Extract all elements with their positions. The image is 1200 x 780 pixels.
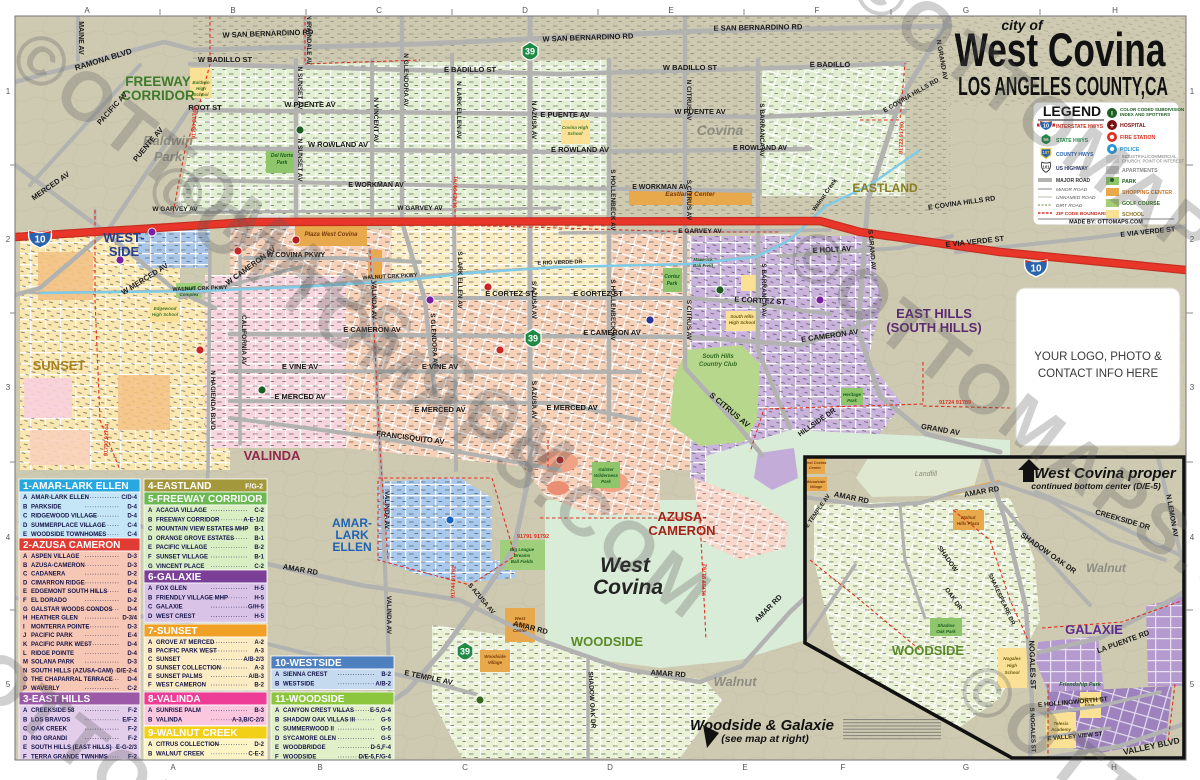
svg-text:91791 91792: 91791 91792 [517,534,549,540]
svg-text:VINCENT PLACE: VINCENT PLACE [156,564,204,570]
svg-text:Landfill: Landfill [915,471,938,478]
svg-text:11-WOODSIDE: 11-WOODSIDE [275,694,345,705]
svg-text:PACIFIC VILLAGE: PACIFIC VILLAGE [156,545,207,551]
svg-text:A/B-3: A/B-3 [248,674,264,680]
svg-text:PACIFIC PARK WEST: PACIFIC PARK WEST [156,649,217,655]
svg-text:B-2: B-2 [254,683,264,689]
svg-text:39: 39 [525,47,535,57]
svg-text:A-2: A-2 [254,640,264,646]
svg-text:SIENNA CREST: SIENNA CREST [283,672,328,678]
svg-text:ASPEN VILLAGE: ASPEN VILLAGE [31,554,79,560]
svg-text:AZUSA-CAMERON: AZUSA-CAMERON [31,563,85,569]
svg-text:E: E [23,589,27,595]
svg-text:C: C [148,527,153,533]
svg-text:D-4: D-4 [127,607,137,613]
svg-text:AZUSA-: AZUSA- [657,509,706,524]
svg-text:10-WESTSIDE: 10-WESTSIDE [275,658,342,669]
svg-text:SYCAMORE GLEN: SYCAMORE GLEN [283,736,336,742]
svg-text:S BARRANCA AV: S BARRANCA AV [760,263,767,317]
svg-text:PARKSIDE: PARKSIDE [31,504,62,510]
svg-text:South Hills: South Hills [730,314,754,319]
svg-text:Eastland Center: Eastland Center [665,191,715,198]
svg-text:N GLENDORA AV: N GLENDORA AV [402,53,409,107]
svg-text:D-4: D-4 [127,514,137,520]
svg-text:SUMMERPLACE VILLAGE: SUMMERPLACE VILLAGE [31,523,106,529]
svg-text:WESTSIDE: WESTSIDE [283,681,314,687]
svg-text:B: B [23,563,28,569]
svg-text:RIDGEWOOD VILLAGE: RIDGEWOOD VILLAGE [31,514,97,520]
svg-text:B-1: B-1 [254,527,264,533]
svg-text:Oak Park: Oak Park [936,629,956,634]
svg-text:SUNSET VILLAGE: SUNSET VILLAGE [156,555,208,561]
svg-text:D-3/4: D-3/4 [122,616,137,622]
svg-text:B: B [148,717,153,723]
svg-text:F: F [23,598,27,604]
svg-text:W PUENTE AV: W PUENTE AV [284,100,335,109]
svg-text:91790 91744: 91790 91744 [103,423,110,456]
svg-text:Galster: Galster [598,467,614,472]
svg-text:B-1: B-1 [254,555,264,561]
svg-text:G-5: G-5 [381,736,392,742]
svg-text:F: F [148,683,152,689]
svg-text:A/B-2/3: A/B-2/3 [243,657,264,663]
svg-text:C: C [275,727,280,733]
svg-text:D: D [23,523,28,529]
svg-text:W ROWLAND AV: W ROWLAND AV [308,140,368,149]
svg-text:B: B [317,763,322,772]
svg-text:Edgewood: Edgewood [154,306,177,311]
svg-text:1: 1 [6,87,11,96]
svg-text:C/D-4: C/D-4 [121,495,137,501]
svg-text:N HACIENDA BLVD: N HACIENDA BLVD [209,370,216,430]
svg-text:4: 4 [6,533,11,542]
svg-text:C-4: C-4 [127,523,137,529]
svg-text:E-5,G-4: E-5,G-4 [370,708,392,714]
svg-text:E: E [23,532,27,538]
svg-text:10: 10 [1030,264,1042,275]
svg-text:5: 5 [1190,680,1195,689]
svg-text:West Covina: West Covina [804,461,827,465]
svg-text:A-3,B/C-2/3: A-3,B/C-2/3 [232,717,265,723]
svg-text:B-1: B-1 [254,536,264,542]
svg-text:D: D [148,614,153,620]
svg-text:H-5: H-5 [254,614,264,620]
svg-text:H: H [23,616,27,622]
svg-text:WOODSIDE: WOODSIDE [892,643,965,658]
svg-text:3: 3 [6,383,11,392]
svg-text:Village: Village [488,660,503,665]
svg-text:Cortez: Cortez [664,274,680,280]
svg-text:C: C [148,605,153,611]
svg-text:EDGEMONT SOUTH HILLS: EDGEMONT SOUTH HILLS [31,589,107,595]
svg-text:Big League: Big League [510,547,535,552]
svg-text:MONTERRA POINTE: MONTERRA POINTE [31,624,89,630]
svg-text:CANYON CREST VILLAS: CANYON CREST VILLAS [283,708,354,714]
svg-text:B-2: B-2 [381,672,391,678]
svg-text:Woodside: Woodside [484,654,506,659]
svg-text:E MERCED AV: E MERCED AV [274,392,325,401]
svg-text:9-WALNUT CREEK: 9-WALNUT CREEK [148,728,238,739]
svg-text:(see map at right): (see map at right) [721,733,809,745]
svg-text:Covina High: Covina High [562,125,589,130]
svg-text:A-3: A-3 [254,649,264,655]
svg-text:Walnut: Walnut [713,674,757,689]
svg-text:D-4: D-4 [127,504,137,510]
svg-text:D/E-2-4: D/E-2-4 [116,668,137,674]
svg-text:N AZUSA AV: N AZUSA AV [530,101,537,140]
svg-text:F/G-2: F/G-2 [245,484,263,491]
svg-text:G-5: G-5 [381,717,392,723]
svg-text:DIRT ROAD: DIRT ROAD [1056,203,1083,209]
svg-text:6-GALAXIE: 6-GALAXIE [148,572,202,583]
svg-text:G: G [963,763,969,772]
svg-text:W PUENTE AV: W PUENTE AV [674,107,725,116]
svg-text:Center: Center [513,628,528,633]
svg-text:39: 39 [528,334,538,344]
svg-text:C: C [148,657,153,663]
svg-text:Country Club: Country Club [699,362,737,368]
svg-text:ORANGE GROVE ESTATES: ORANGE GROVE ESTATES [156,536,234,542]
svg-text:3: 3 [1190,383,1195,392]
svg-text:A: A [23,554,28,560]
svg-text:E: E [148,674,152,680]
svg-text:N CITRUS AV: N CITRUS AV [685,80,692,121]
svg-text:HEATHER GLEN: HEATHER GLEN [31,616,78,622]
svg-text:D-2: D-2 [127,598,137,604]
svg-text:Ball Fields: Ball Fields [511,559,534,564]
svg-text:1: 1 [1190,87,1195,96]
svg-text:D-4: D-4 [127,580,137,586]
svg-text:Walnut: Walnut [1086,561,1127,575]
svg-text:Sports: Sports [182,286,197,291]
svg-text:WEST CAMERON: WEST CAMERON [156,683,206,689]
svg-text:Heritage: Heritage [843,392,862,397]
svg-text:C: C [23,572,28,578]
svg-text:N VINCENT AV: N VINCENT AV [372,97,379,143]
svg-text:WOODSIDE: WOODSIDE [571,634,644,649]
svg-text:WOODBRIDGE: WOODBRIDGE [283,745,326,751]
svg-text:E VINE AV: E VINE AV [282,362,318,371]
svg-text:S BARRANCA AV: S BARRANCA AV [758,103,765,157]
svg-text:H: H [1112,6,1118,15]
svg-text:91744 91792: 91744 91792 [450,566,457,598]
svg-text:YOUR LOGO, PHOTO &: YOUR LOGO, PHOTO & [1034,351,1162,363]
svg-text:E: E [148,545,152,551]
svg-text:S HOLLENBECK AV: S HOLLENBECK AV [609,169,616,231]
svg-text:F: F [148,555,152,561]
svg-text:Hills Plaza: Hills Plaza [957,521,980,526]
svg-text:C-2: C-2 [254,564,264,570]
svg-text:CITRUS COLLECTION: CITRUS COLLECTION [156,742,219,748]
svg-text:E BADILLO ST: E BADILLO ST [444,65,497,74]
svg-text:K: K [23,642,28,648]
svg-text:WALNUT CREEK: WALNUT CREEK [156,751,205,757]
svg-text:S LARK ELLEN AV: S LARK ELLEN AV [456,251,463,309]
svg-text:C-2: C-2 [127,686,137,692]
svg-text:A: A [148,508,153,514]
svg-text:Park: Park [847,398,857,403]
svg-text:VALINDA: VALINDA [156,717,183,723]
svg-text:Park: Park [667,281,678,287]
svg-text:A-E-1/2: A-E-1/2 [243,517,264,523]
svg-text:D: D [522,6,528,15]
svg-text:D: D [607,763,613,772]
svg-text:E: E [275,745,279,751]
svg-text:Del Norte: Del Norte [271,153,293,159]
svg-text:South Hills: South Hills [702,354,734,360]
svg-text:D-4: D-4 [127,642,137,648]
svg-text:Village: Village [810,484,824,489]
svg-text:GROVE AT MERCED: GROVE AT MERCED [156,640,215,646]
svg-text:GALAXIE: GALAXIE [156,605,183,611]
svg-text:W BADILLO ST: W BADILLO ST [198,55,253,64]
svg-text:D-3: D-3 [127,554,137,560]
svg-text:E-4: E-4 [128,633,138,639]
svg-text:E CORTEZ ST: E CORTEZ ST [485,289,535,298]
svg-text:Center: Center [809,466,822,470]
svg-text:VALINDA AV: VALINDA AV [383,491,390,530]
svg-text:FREEWAY CORRIDOR: FREEWAY CORRIDOR [156,517,220,523]
svg-text:C: C [23,514,28,520]
svg-text:School: School [567,131,583,136]
svg-text:PACIFIC PARK: PACIFIC PARK [31,633,73,639]
svg-text:C: C [462,763,468,772]
svg-text:PACIFIC PARK WEST: PACIFIC PARK WEST [31,642,92,648]
svg-text:D: D [148,536,153,542]
svg-text:Maverick: Maverick [693,257,713,262]
svg-text:WOODSIDE TOWNHOMES: WOODSIDE TOWNHOMES [31,532,106,538]
svg-text:F-2: F-2 [128,708,138,714]
svg-text:E MERCED AV: E MERCED AV [546,403,597,412]
svg-text:C-E-2: C-E-2 [248,751,264,757]
svg-text:E GARVEY AV: E GARVEY AV [678,228,722,235]
svg-text:C: C [376,6,382,15]
svg-text:7-SUNSET: 7-SUNSET [148,626,197,637]
svg-text:FOX GLEN: FOX GLEN [156,586,187,592]
svg-text:High School: High School [152,312,179,317]
svg-text:B: B [148,649,153,655]
svg-text:D: D [275,736,280,742]
svg-text:INDEX AND SPOTTERS: INDEX AND SPOTTERS [1120,112,1170,117]
svg-text:E WORKMAN AV: E WORKMAN AV [632,184,688,191]
svg-text:A: A [148,640,153,646]
svg-text:Covina: Covina [512,622,528,627]
svg-text:D: D [148,666,153,672]
svg-text:B: B [275,717,280,723]
svg-text:S CITRUS AV: S CITRUS AV [685,300,692,341]
svg-text:CONTACT INFO HERE: CONTACT INFO HERE [1038,368,1159,380]
svg-text:D-4: D-4 [127,651,137,657]
svg-text:2-AZUSA CAMERON: 2-AZUSA CAMERON [23,540,120,551]
svg-text:91723 91791: 91723 91791 [452,176,459,208]
svg-text:Ball Field: Ball Field [693,263,713,268]
svg-text:A: A [148,708,153,714]
svg-text:D-3: D-3 [127,624,137,630]
svg-text:Elem.: Elem. [1085,702,1096,707]
svg-text:ELLEN: ELLEN [332,540,371,554]
svg-text:E: E [668,6,673,15]
svg-text:N SUNSET AV: N SUNSET AV [296,139,303,183]
svg-text:Woodside & Galaxie: Woodside & Galaxie [690,717,834,734]
svg-text:S CITRUS AV: S CITRUS AV [685,180,692,221]
svg-text:B: B [23,504,28,510]
svg-text:A-3: A-3 [254,666,264,672]
svg-text:A: A [23,495,28,501]
svg-text:39: 39 [460,647,470,657]
svg-text:High School: High School [729,320,756,325]
svg-text:W BADILLO ST: W BADILLO ST [663,63,718,72]
svg-text:FRIENDLY VILLAGE MHP: FRIENDLY VILLAGE MHP [156,595,228,601]
svg-text:H-5: H-5 [254,595,264,601]
svg-text:E PUENTE AV: E PUENTE AV [540,110,589,119]
svg-text:SHADOW OAK VILLAS III: SHADOW OAK VILLAS III [283,717,355,723]
svg-text:F: F [815,6,820,15]
svg-text:B-2: B-2 [254,545,264,551]
svg-text:B: B [230,6,235,15]
svg-text:S AZUSA AV: S AZUSA AV [530,281,537,320]
svg-text:Hollingworth: Hollingworth [1078,696,1103,701]
svg-text:E WORKMAN AV: E WORKMAN AV [348,182,404,189]
svg-text:G-5: G-5 [381,727,392,733]
svg-text:D-2: D-2 [254,742,264,748]
svg-text:WEST CREST: WEST CREST [156,614,196,620]
svg-text:VALINDA AV: VALINDA AV [385,596,392,635]
svg-text:10: 10 [34,235,46,246]
svg-text:D-5,F-4: D-5,F-4 [371,745,392,751]
svg-text:SIDE: SIDE [109,244,140,259]
svg-text:SUMMERWOOD II: SUMMERWOOD II [283,727,334,733]
svg-text:GALAXIE: GALAXIE [1065,622,1123,637]
svg-text:D-2: D-2 [127,572,137,578]
svg-text:D-3: D-3 [127,660,137,666]
svg-text:SUNSET PALMS: SUNSET PALMS [156,674,203,680]
svg-text:GALSTAR WOODS CONDOS: GALSTAR WOODS CONDOS [31,607,113,613]
svg-text:High: High [196,86,206,91]
svg-text:WEST-: WEST- [103,230,144,245]
svg-text:HOSPITAL: HOSPITAL [1120,123,1147,129]
svg-text:SUNSET: SUNSET [33,358,86,373]
svg-text:SUNSET: SUNSET [156,657,181,663]
svg-text:ACACIA VILLAGE: ACACIA VILLAGE [156,508,207,514]
svg-text:A/B-2: A/B-2 [375,681,391,687]
svg-text:8-VALINDA: 8-VALINDA [148,694,201,705]
svg-text:EL DORADO: EL DORADO [31,598,67,604]
svg-text:CADANERA: CADANERA [31,572,66,578]
svg-text:E: E [742,763,747,772]
svg-text:F: F [841,763,846,772]
svg-text:Covina: Covina [697,122,744,138]
svg-text:A: A [148,586,153,592]
svg-text:A: A [275,672,280,678]
svg-text:Park: Park [277,160,288,166]
svg-text:RIDGE POINTE: RIDGE POINTE [31,651,74,657]
svg-text:1-AMAR-LARK ELLEN: 1-AMAR-LARK ELLEN [23,481,129,492]
svg-text:Complex: Complex [179,292,199,297]
svg-text:E BADILLO: E BADILLO [810,60,851,69]
svg-text:N LARK ELLEN AV: N LARK ELLEN AV [455,81,462,139]
svg-text:B-3: B-3 [254,708,264,714]
svg-text:G: G [23,607,28,613]
svg-text:CIMARRON RIDGE: CIMARRON RIDGE [31,580,85,586]
svg-text:91722 91790: 91722 91790 [898,122,905,154]
svg-text:Friendship Park: Friendship Park [1059,682,1102,688]
svg-text:SUNSET COLLECTION: SUNSET COLLECTION [156,666,221,672]
svg-text:E ROWLAND AV: E ROWLAND AV [551,145,609,154]
svg-text:B: B [148,517,153,523]
svg-text:E/F-2: E/F-2 [122,717,137,723]
svg-text:West: West [515,616,526,621]
svg-text:C-4: C-4 [127,532,137,538]
svg-text:Walnut: Walnut [961,515,976,520]
svg-text:A: A [84,6,90,15]
svg-text:EASTLAND: EASTLAND [852,181,918,195]
svg-text:G: G [148,564,153,570]
svg-text:Shadow: Shadow [937,623,955,628]
svg-text:SUNRISE PALM: SUNRISE PALM [156,708,201,714]
svg-text:A: A [275,708,280,714]
svg-text:D: D [23,580,28,586]
svg-text:N SUNSET AV: N SUNSET AV [296,67,303,111]
svg-text:VALINDA: VALINDA [244,448,301,463]
svg-text:E SAN BERNARDINO RD: E SAN BERNARDINO RD [714,22,803,33]
svg-text:AMAR-LARK ELLEN: AMAR-LARK ELLEN [31,495,89,501]
svg-text:N IRWINDALE AV: N IRWINDALE AV [305,15,311,64]
svg-text:MOUNTAIN VIEW ESTATES MHP: MOUNTAIN VIEW ESTATES MHP [156,527,248,533]
svg-text:B: B [275,681,280,687]
svg-text:H-5: H-5 [254,586,264,592]
svg-text:School: School [193,92,209,97]
svg-text:S HOLLENBECK AV: S HOLLENBECK AV [609,279,616,341]
svg-text:Dreams: Dreams [514,553,531,558]
svg-text:D-4: D-4 [127,677,137,683]
svg-text:W GARVEY AV: W GARVEY AV [397,205,443,212]
svg-text:G/H-5: G/H-5 [248,605,265,611]
svg-text:E-4: E-4 [128,589,138,595]
svg-text:J: J [23,633,26,639]
svg-text:Baldwin: Baldwin [192,80,210,85]
svg-text:CALIFORNIA AV: CALIFORNIA AV [240,315,247,366]
svg-text:4-EASTLAND: 4-EASTLAND [148,481,211,492]
svg-text:D-3: D-3 [127,563,137,569]
svg-text:C-2: C-2 [254,508,264,514]
svg-text:2: 2 [6,235,11,244]
svg-text:B: B [148,595,153,601]
svg-text:5-FREEWAY CORRIDOR: 5-FREEWAY CORRIDOR [148,494,263,505]
